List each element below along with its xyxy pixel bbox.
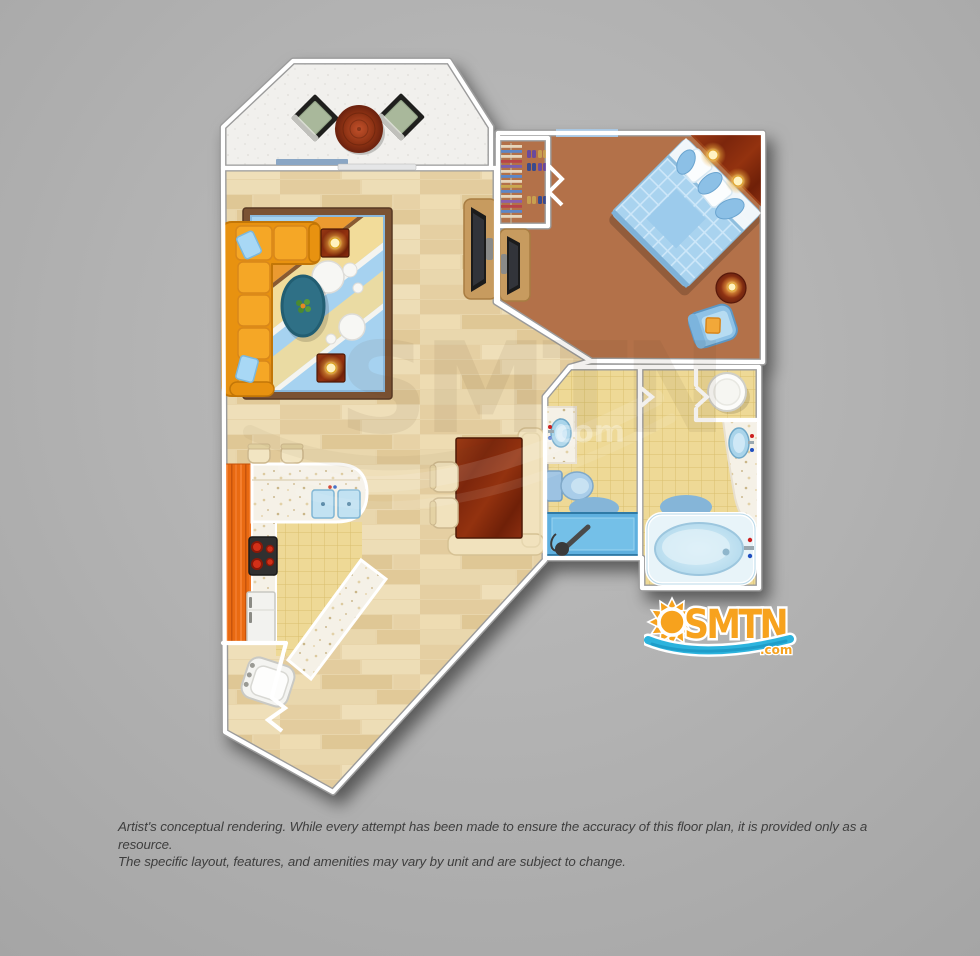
disclaimer-line-1: Artist's conceptual rendering. While eve… <box>118 818 918 853</box>
watermark-domain: .com <box>544 415 625 450</box>
side-table-lamp <box>716 273 746 303</box>
stove <box>249 537 277 575</box>
logo-domain: .com <box>760 643 792 657</box>
end-table-lamp <box>321 229 349 257</box>
headboard-lamp <box>725 168 751 194</box>
bathtub <box>647 514 755 584</box>
disclaimer: Artist's conceptual rendering. While eve… <box>118 818 918 871</box>
watermark-text: SMTN <box>338 315 722 462</box>
bedroom-tv-console <box>500 229 530 301</box>
living-tv-console <box>464 199 497 299</box>
refrigerator <box>247 592 275 642</box>
hanging-clothes <box>501 145 522 218</box>
smtn-logo: SMTN .com <box>644 590 804 670</box>
headboard-lamp <box>700 142 726 168</box>
shower <box>546 513 640 556</box>
disclaimer-line-2: The specific layout, features, and ameni… <box>118 853 918 871</box>
floor-plan: SMTN .com <box>0 0 980 956</box>
